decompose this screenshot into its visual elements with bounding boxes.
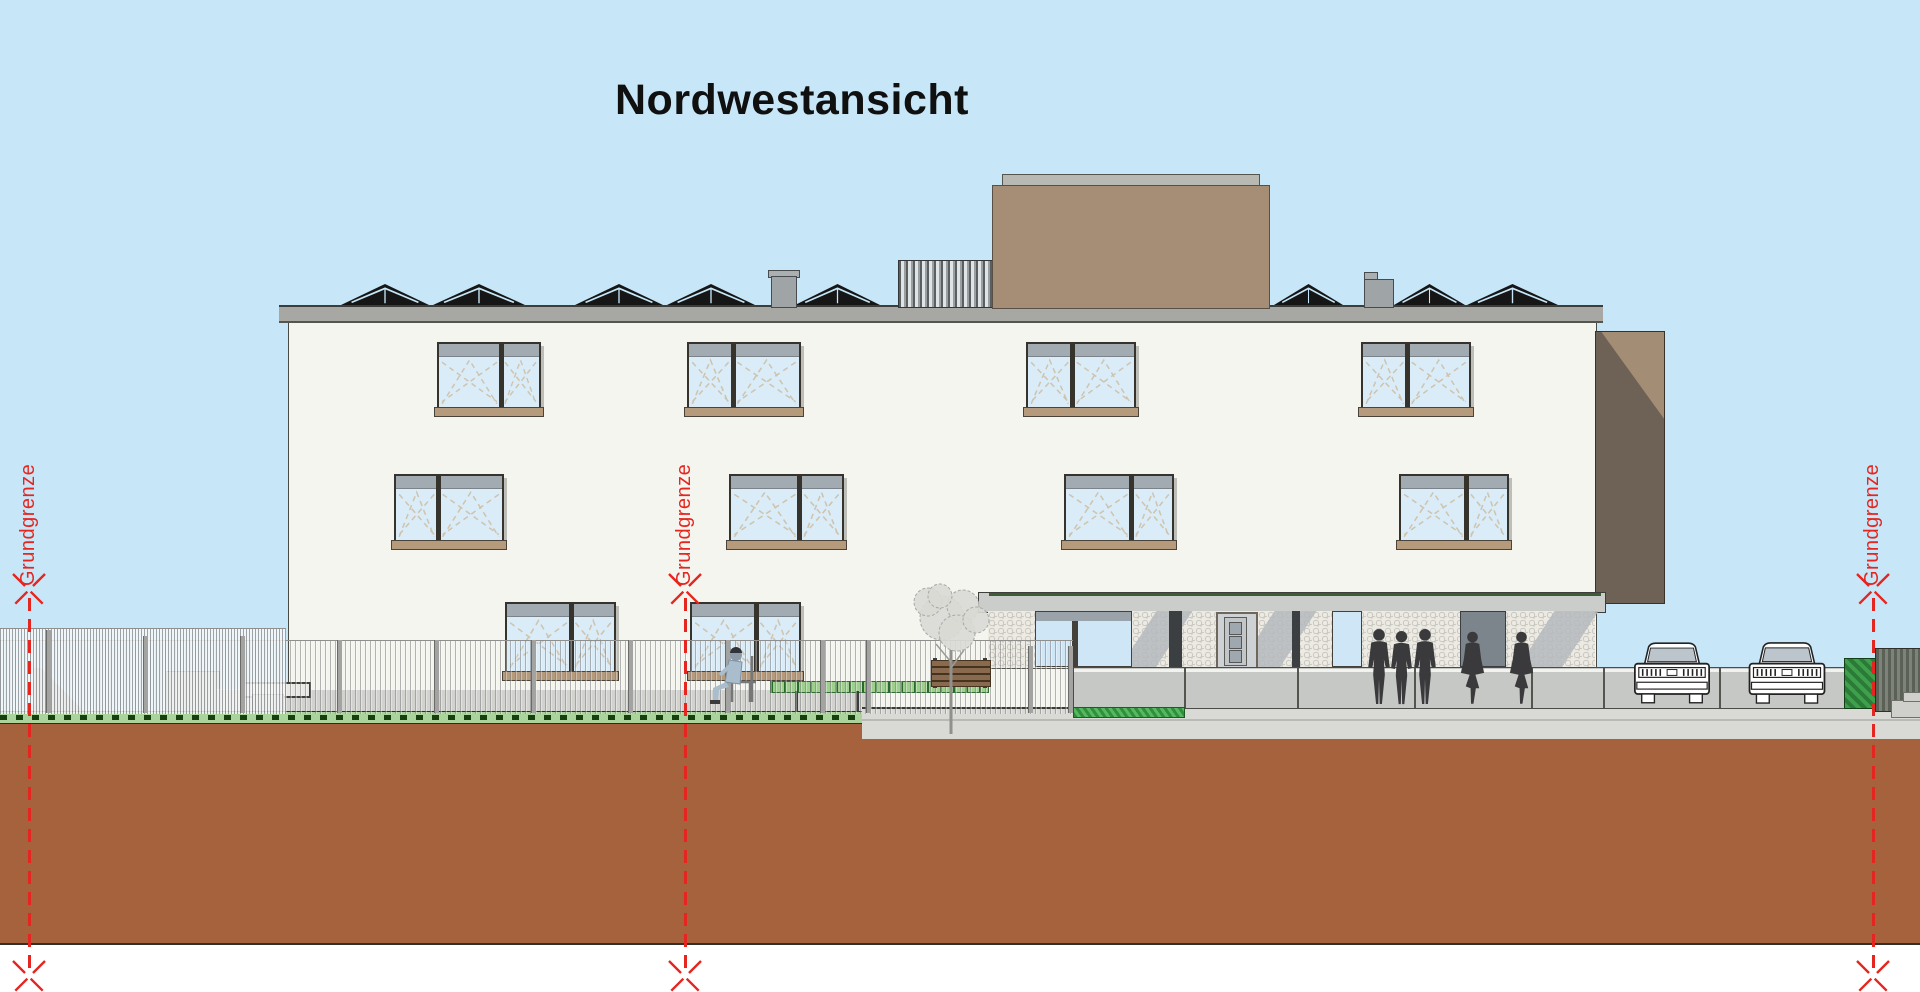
boundary-line <box>28 598 31 975</box>
boundary-label: Grundgrenze <box>17 446 41 586</box>
elevation-drawing: Nordwestansicht <box>0 0 1920 992</box>
fence-post <box>143 636 148 713</box>
steps <box>1891 700 1920 718</box>
bench-slat <box>931 681 991 687</box>
parapet-joint <box>1297 668 1299 708</box>
boundary-label: Grundgrenze <box>673 446 697 586</box>
fence-post <box>531 640 536 713</box>
fence-post <box>866 640 871 713</box>
bench-slat <box>931 674 991 681</box>
parapet-joint <box>1531 668 1533 708</box>
boundary-marker-icon <box>1853 957 1893 992</box>
fence-post <box>434 640 439 713</box>
fence-post <box>725 640 730 713</box>
terrace-parapet <box>1073 667 1858 709</box>
boundary-line <box>684 598 687 975</box>
boundary-marker-icon <box>665 957 705 992</box>
parapet-joint <box>1719 668 1721 708</box>
parapet-cap <box>1074 669 1857 672</box>
parapet-joint <box>1184 668 1186 708</box>
boundary-line <box>1872 598 1875 975</box>
bench-slat <box>931 660 991 667</box>
steps <box>1903 692 1920 702</box>
fence-post <box>46 630 51 713</box>
parapet-joint <box>1603 668 1605 708</box>
planting-bed <box>1073 707 1185 718</box>
fence-post <box>1028 646 1033 713</box>
fence-posts <box>0 0 1920 992</box>
parapet-joint <box>1414 668 1416 708</box>
boundary-marker-icon <box>9 957 49 992</box>
fence-post <box>628 640 633 713</box>
bench-slat <box>931 667 991 674</box>
fence-post <box>820 640 825 713</box>
fence-post <box>337 640 342 713</box>
boundary-label: Grundgrenze <box>1861 446 1885 586</box>
fence-post <box>240 636 245 713</box>
